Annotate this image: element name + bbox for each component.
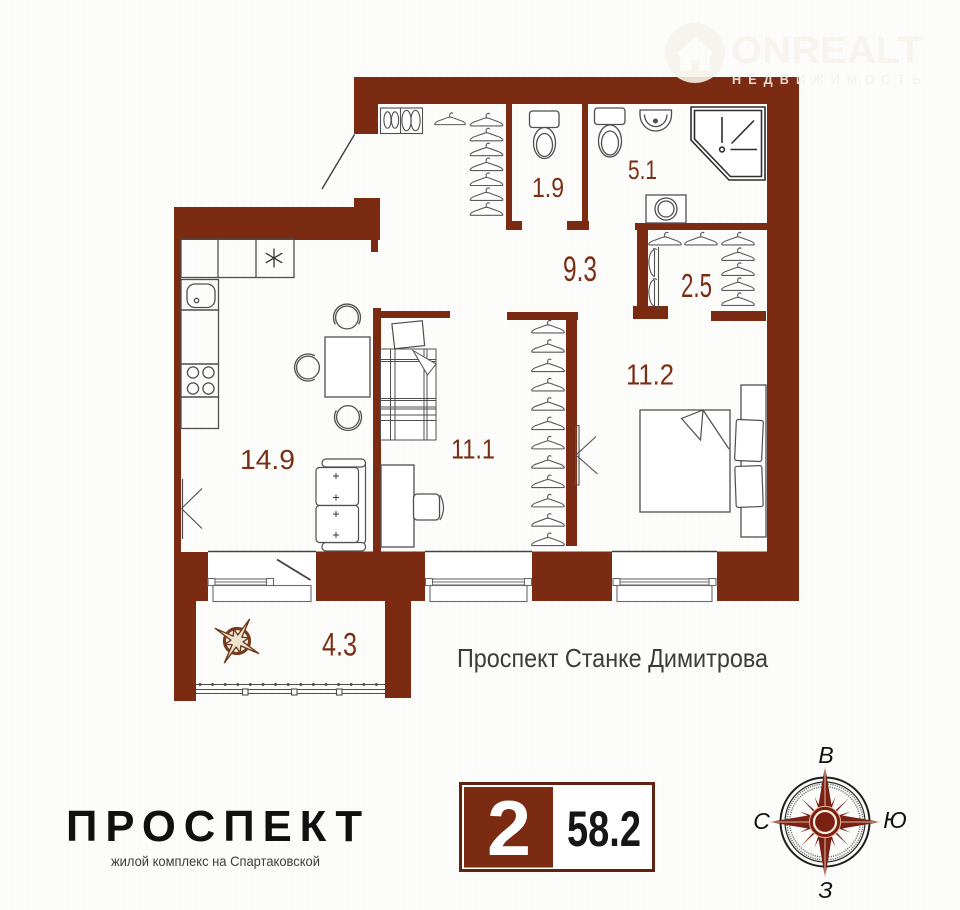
svg-text:58.2: 58.2	[567, 801, 641, 857]
svg-text:11.2: 11.2	[626, 360, 674, 392]
svg-text:ПРОСПЕКТ: ПРОСПЕКТ	[66, 802, 370, 851]
svg-text:НЕДВИЖИМОСТЬ: НЕДВИЖИМОСТЬ	[732, 72, 928, 87]
svg-text:жилой комплекс на Спартаковско: жилой комплекс на Спартаковской	[111, 853, 320, 869]
svg-text:5.1: 5.1	[628, 155, 657, 185]
svg-text:З: З	[818, 877, 832, 903]
svg-text:11.1: 11.1	[451, 434, 495, 465]
svg-text:2: 2	[487, 784, 531, 872]
svg-text:9.3: 9.3	[563, 250, 597, 289]
svg-text:1.9: 1.9	[532, 172, 564, 203]
svg-text:2.5: 2.5	[681, 267, 712, 304]
svg-text:4.3: 4.3	[322, 627, 357, 663]
svg-text:14.9: 14.9	[240, 444, 295, 475]
svg-text:ONREALT: ONREALT	[731, 30, 922, 72]
svg-text:С: С	[753, 808, 770, 834]
svg-text:В: В	[818, 742, 833, 768]
svg-text:Ю: Ю	[883, 807, 907, 833]
svg-text:Проспект Станке Димитрова: Проспект Станке Димитрова	[457, 643, 768, 673]
